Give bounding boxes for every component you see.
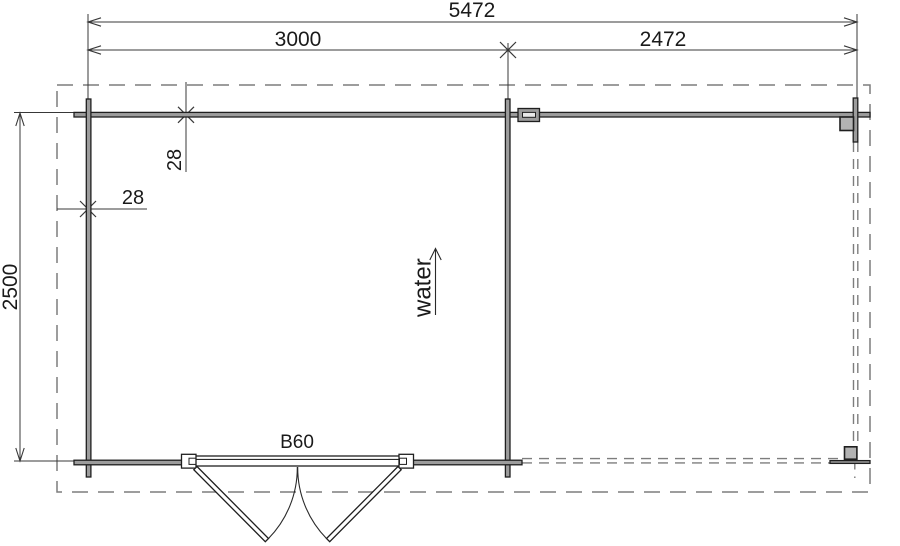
dim-wall-thickness-top: 28 [164,149,186,171]
door-leaf-left [194,467,269,542]
veranda-open-edges [522,142,858,478]
floor-plan-canvas: 5472 3000 2472 2500 28 28 B60 water [0,0,900,546]
door-swing-arc-left [269,467,298,539]
floor-plan-drawing: 5472 3000 2472 2500 28 28 B60 water [0,0,900,546]
wall-bottom-right [409,460,522,465]
wall-log-end-bottom-right [830,461,870,464]
veranda-posts [840,117,857,459]
walls [74,98,870,477]
wall-left [86,99,91,477]
door-swing-arc-right [298,467,327,539]
double-door [182,454,414,541]
door-frame-header [186,456,409,466]
post-top-right [840,117,854,131]
wall-joint-detail [518,109,540,122]
dim-depth: 2500 [0,264,22,311]
roof-overhang-outline [57,85,870,492]
water-label: water [410,258,437,318]
wall-bottom-left [74,460,186,465]
dimension-lines [14,14,857,461]
post-bottom-right [845,447,857,459]
door-leaf-right [327,467,402,542]
dim-wall-thickness-side: 28 [122,187,144,209]
dim-total-width: 5472 [449,0,496,22]
wall-center [505,99,510,477]
wall-top [74,112,870,117]
door-label: B60 [280,432,314,453]
dim-veranda-width: 2472 [640,28,687,51]
dim-cabin-width: 3000 [275,28,322,51]
